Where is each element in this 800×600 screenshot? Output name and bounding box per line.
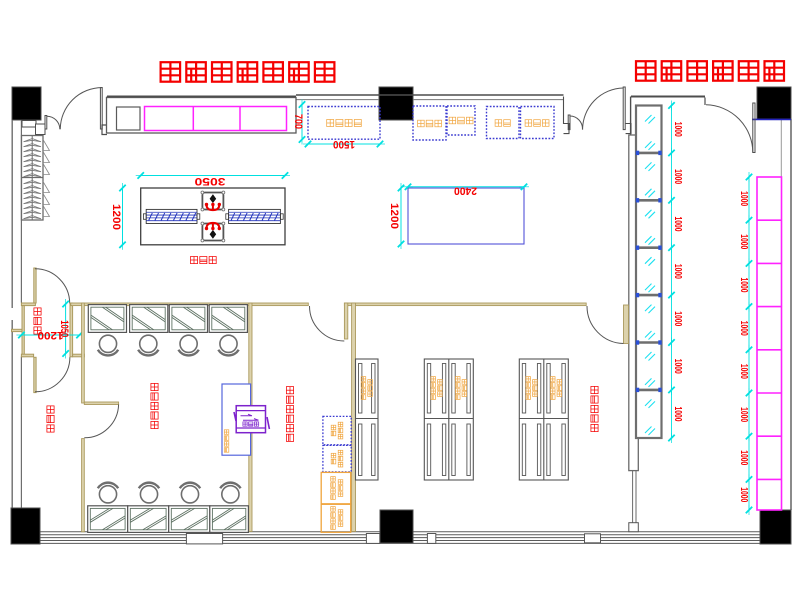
svg-text:1000: 1000 xyxy=(738,487,749,502)
svg-text:3050: 3050 xyxy=(195,175,226,187)
svg-text:1050: 1050 xyxy=(58,320,70,337)
svg-text:1000: 1000 xyxy=(738,364,749,379)
svg-text:1500: 1500 xyxy=(333,138,355,150)
svg-text:1000: 1000 xyxy=(672,406,683,421)
svg-text:1000: 1000 xyxy=(738,450,749,465)
svg-text:1000: 1000 xyxy=(738,191,749,206)
svg-text:1000: 1000 xyxy=(738,278,749,293)
svg-text:1000: 1000 xyxy=(672,359,683,374)
svg-text:2400: 2400 xyxy=(454,185,477,197)
svg-text:1000: 1000 xyxy=(672,122,683,137)
svg-text:1200: 1200 xyxy=(388,203,400,229)
svg-text:1000: 1000 xyxy=(672,217,683,232)
svg-text:1000: 1000 xyxy=(738,407,749,422)
svg-text:1000: 1000 xyxy=(672,311,683,326)
svg-text:1000: 1000 xyxy=(738,234,749,249)
svg-text:1200: 1200 xyxy=(110,204,122,230)
svg-text:700: 700 xyxy=(292,114,304,129)
svg-text:1000: 1000 xyxy=(738,321,749,336)
svg-text:1000: 1000 xyxy=(672,169,683,184)
svg-text:1000: 1000 xyxy=(672,264,683,279)
